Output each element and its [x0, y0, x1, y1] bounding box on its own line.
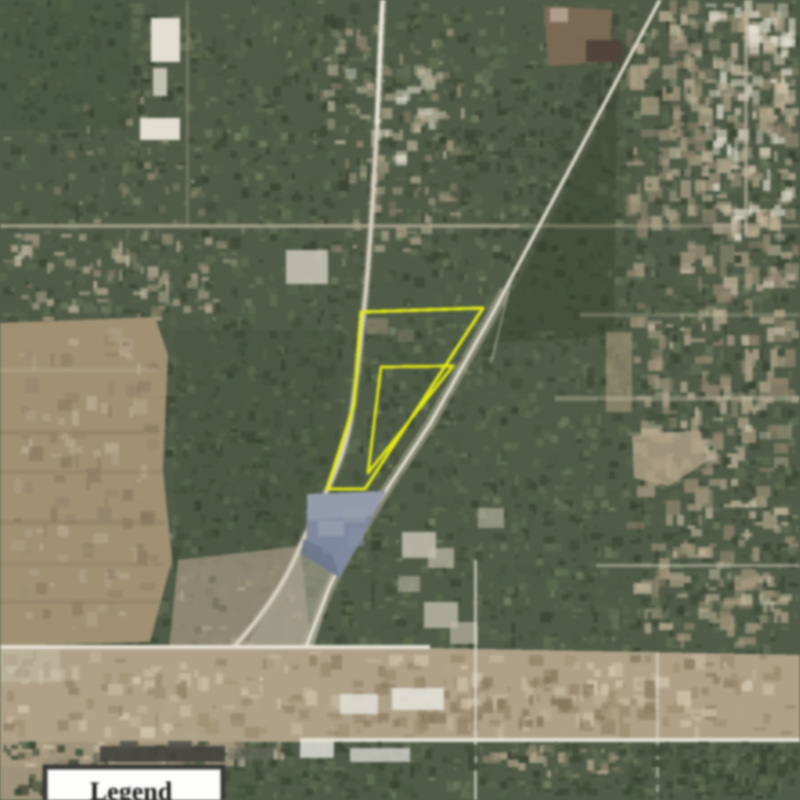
- svg-text:Legend: Legend: [90, 777, 173, 800]
